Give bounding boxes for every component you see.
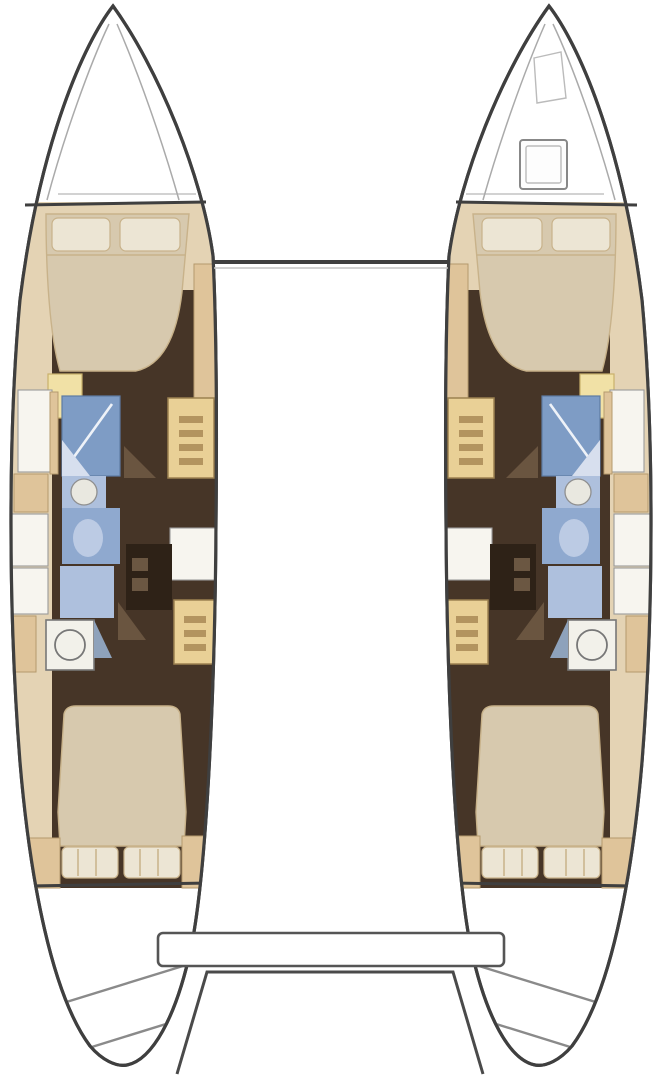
floor-plan [0,0,662,1080]
aft-cockpit-platform [177,972,483,1074]
aft-bench [158,933,504,966]
catamaran-floor-plan-svg [0,0,662,1080]
foredeck-hatch [520,140,567,189]
port-hull [8,6,220,1065]
